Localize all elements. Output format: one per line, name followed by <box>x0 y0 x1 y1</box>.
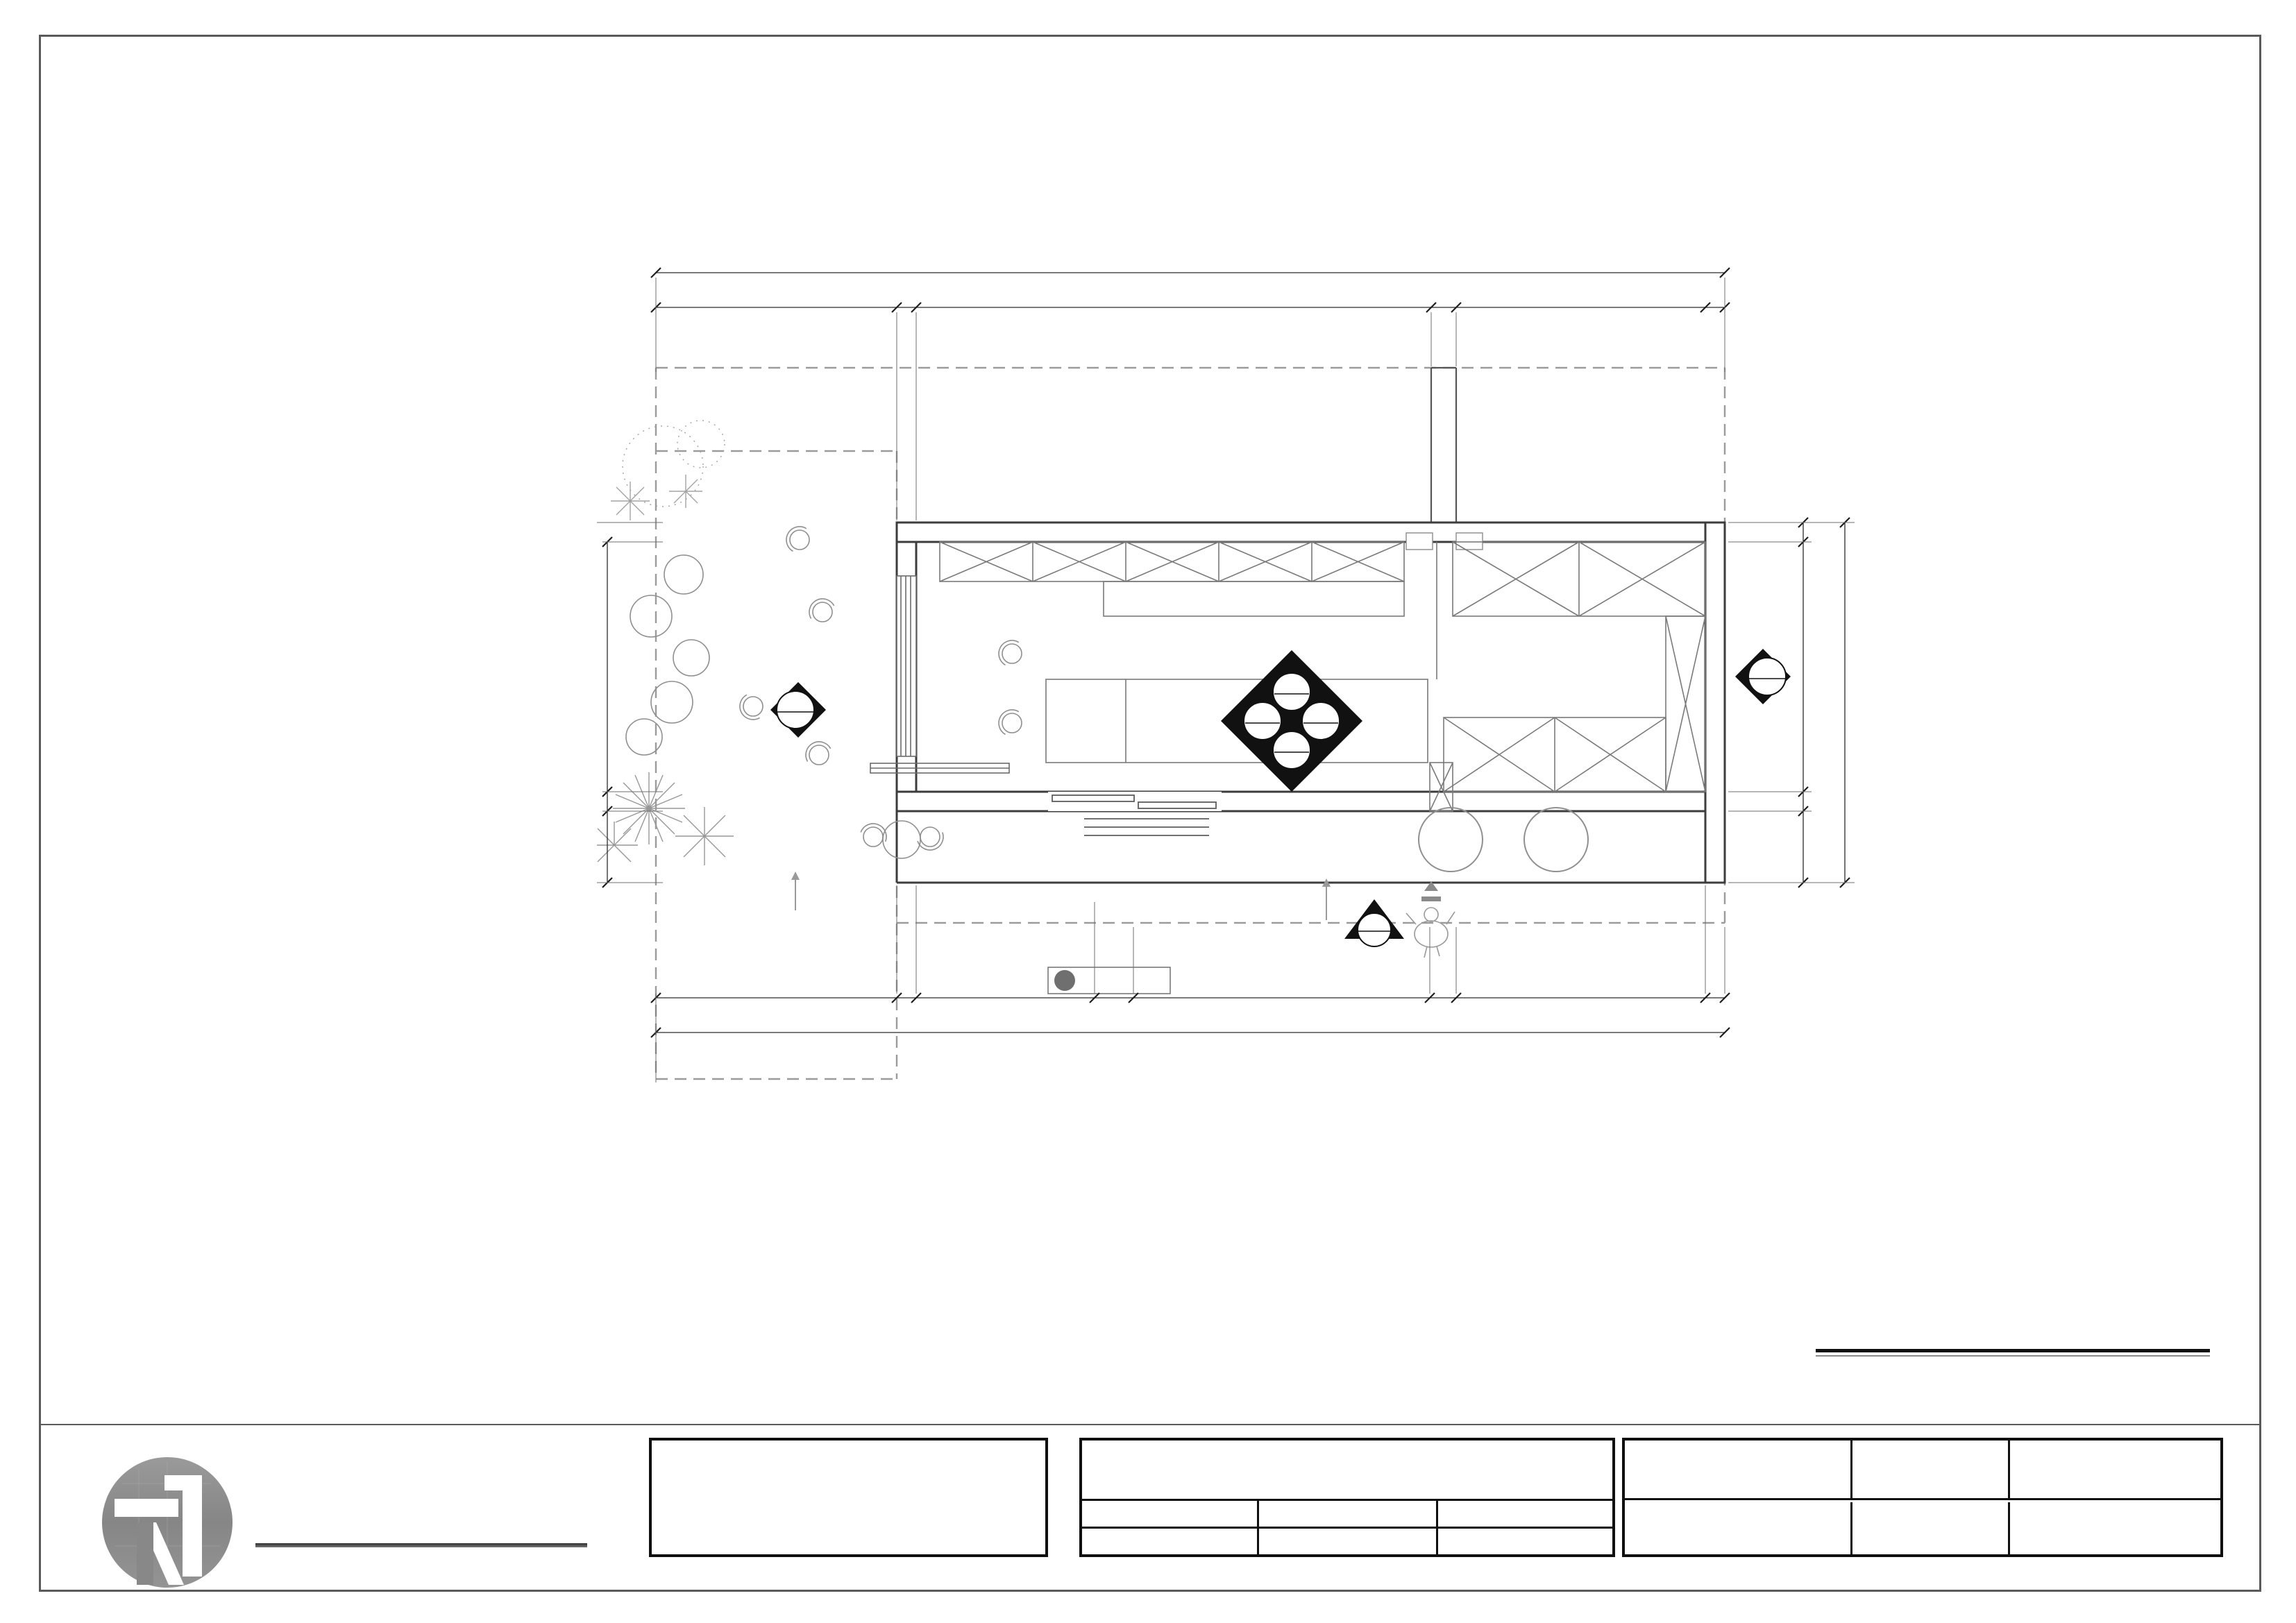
elevation-marker-right <box>1735 649 1791 704</box>
person-figure <box>1406 881 1455 958</box>
top-cabinet-row <box>940 542 1404 616</box>
entry-door <box>1048 792 1222 835</box>
plants <box>597 420 734 865</box>
titleblock-top-rule <box>39 1424 2259 1425</box>
drawing-sheet <box>0 0 2296 1623</box>
dimension-lines <box>597 273 1845 1033</box>
dimension-ticks <box>597 268 1850 1037</box>
client-countersign-label <box>1852 1452 2008 1457</box>
design-row <box>1082 1501 1612 1529</box>
planter-box <box>1048 967 1170 994</box>
round-tables <box>626 555 920 858</box>
step-arrows <box>791 872 1331 920</box>
brand-divider <box>255 1543 587 1547</box>
outdoor-stools <box>1419 808 1588 872</box>
drawing-no-label <box>1625 1502 1850 1513</box>
naso-logo-icon <box>101 1456 234 1589</box>
copyright-note-box <box>649 1438 1048 1557</box>
project-name-row <box>1082 1441 1612 1501</box>
practice-seal-label <box>2010 1441 2220 1452</box>
sheet-info-table <box>1622 1438 2223 1557</box>
site-note <box>1852 1502 2008 1511</box>
window-bench <box>870 763 1009 773</box>
project-info-table <box>1079 1438 1615 1557</box>
top-hung-window <box>897 576 916 756</box>
storage-cabinets <box>1430 542 1705 811</box>
floor-plan <box>597 229 1874 1110</box>
elevation-marker-center <box>1221 650 1362 792</box>
title-underline-thick <box>1816 1349 2210 1352</box>
sheet-name-label <box>1625 1441 1850 1452</box>
column-strip <box>1431 368 1456 522</box>
client-label <box>1852 1441 2008 1452</box>
issue-seal-label <box>2010 1502 2220 1513</box>
draft-row <box>1082 1529 1612 1554</box>
title-underline-thin <box>1816 1355 2210 1357</box>
elevation-marker-left <box>770 682 826 738</box>
